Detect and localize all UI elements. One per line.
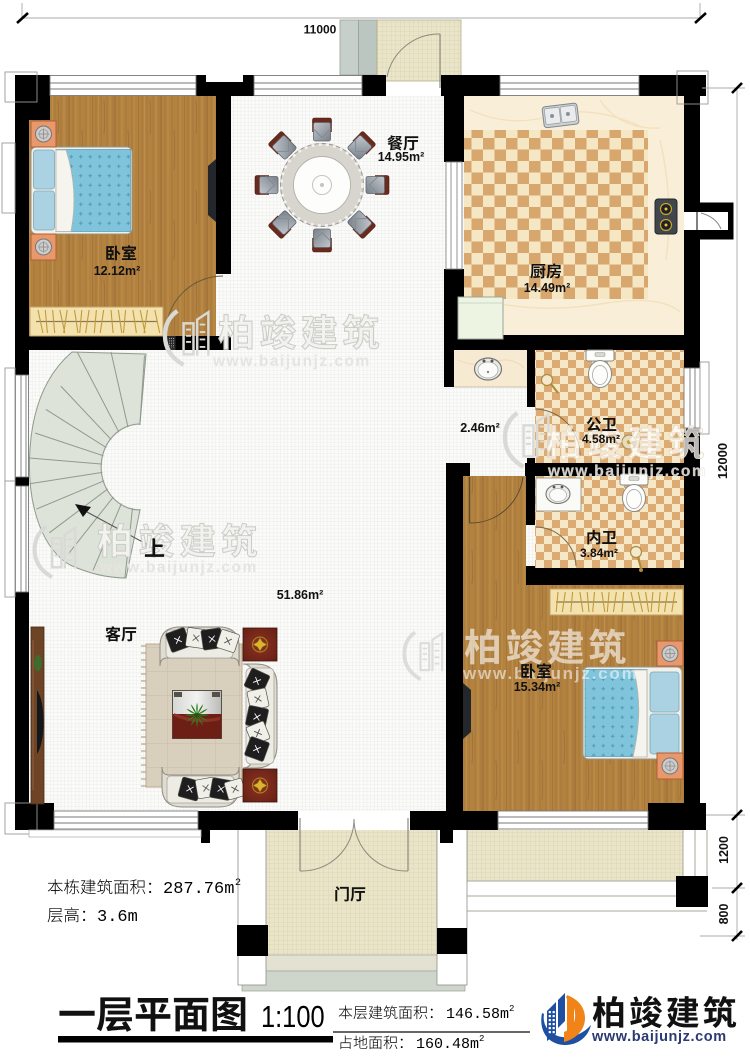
svg-text:160.48m: 160.48m <box>416 1036 479 1053</box>
svg-text:www.baijunjz.com: www.baijunjz.com <box>99 559 258 576</box>
svg-text:2: 2 <box>479 1034 484 1044</box>
svg-text:1:100: 1:100 <box>261 1000 325 1035</box>
svg-text:146.58m: 146.58m <box>446 1006 509 1023</box>
svg-text:51.86m²: 51.86m² <box>277 588 324 602</box>
svg-text:www.baijunjz.com: www.baijunjz.com <box>591 1029 727 1045</box>
svg-text:15.34m²: 15.34m² <box>514 680 561 694</box>
svg-text:3.84m²: 3.84m² <box>580 546 618 560</box>
svg-text:14.49m²: 14.49m² <box>524 281 571 295</box>
svg-text:4.58m²: 4.58m² <box>582 432 620 446</box>
svg-text:11000: 11000 <box>304 23 337 37</box>
svg-text:www.baijunjz.com: www.baijunjz.com <box>547 463 707 480</box>
svg-text:287.76m: 287.76m <box>163 880 234 899</box>
svg-text:2: 2 <box>235 878 241 889</box>
svg-text:3.6m: 3.6m <box>97 908 138 927</box>
svg-text:12.12m²: 12.12m² <box>94 264 141 278</box>
svg-text:2: 2 <box>509 1004 514 1014</box>
svg-text:12000: 12000 <box>715 443 730 479</box>
svg-text:14.95m²: 14.95m² <box>378 150 425 164</box>
svg-text:www.baijunjz.com: www.baijunjz.com <box>212 353 371 370</box>
svg-text:1200: 1200 <box>717 836 731 864</box>
svg-text:2.46m²: 2.46m² <box>460 421 500 435</box>
svg-text:800: 800 <box>717 904 731 925</box>
